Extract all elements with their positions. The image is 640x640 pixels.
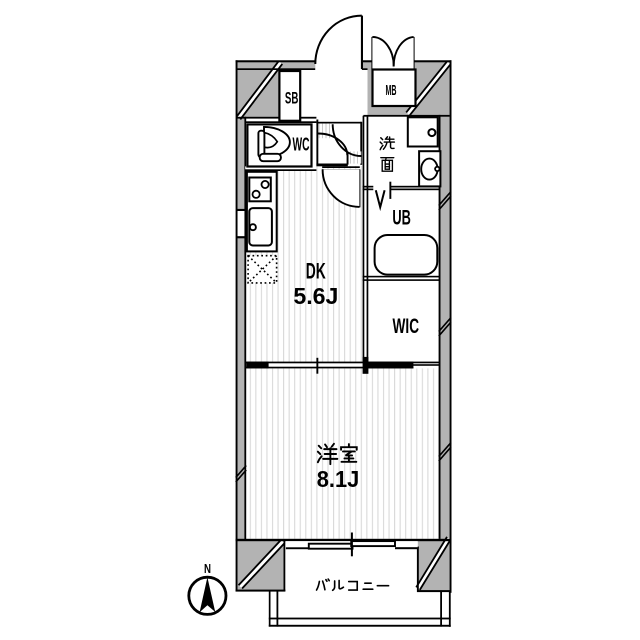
- svg-text:5.6J: 5.6J: [293, 283, 338, 309]
- svg-text:N: N: [204, 561, 211, 576]
- svg-text:DK: DK: [306, 259, 326, 284]
- svg-text:UB: UB: [392, 206, 411, 230]
- svg-text:8.1J: 8.1J: [317, 466, 360, 492]
- svg-text:WIC: WIC: [393, 314, 420, 338]
- svg-text:WC: WC: [293, 134, 310, 155]
- svg-text:MB: MB: [386, 83, 397, 99]
- svg-text:SB: SB: [285, 90, 299, 108]
